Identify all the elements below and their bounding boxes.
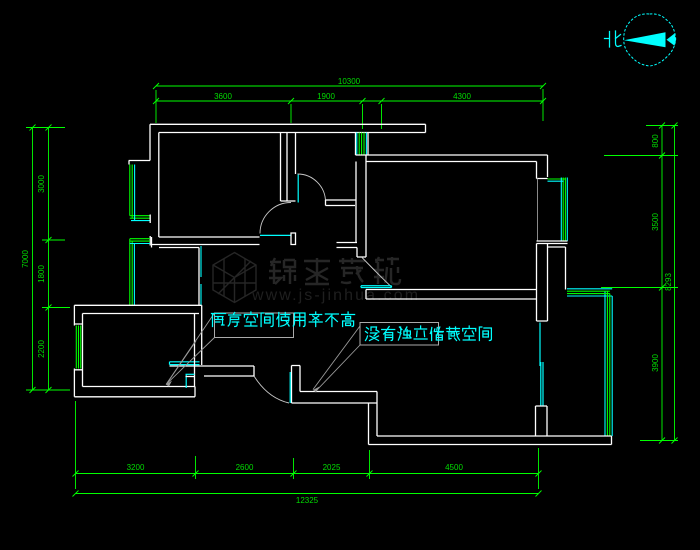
svg-text:10300: 10300 — [338, 77, 361, 86]
svg-text:3900: 3900 — [651, 354, 660, 372]
svg-text:4300: 4300 — [453, 92, 471, 101]
svg-text:2200: 2200 — [37, 340, 46, 358]
svg-text:3500: 3500 — [651, 213, 660, 231]
svg-text:1900: 1900 — [317, 92, 335, 101]
svg-text:2025: 2025 — [323, 463, 341, 472]
svg-text:3600: 3600 — [214, 92, 232, 101]
svg-text:1800: 1800 — [37, 265, 46, 283]
svg-text:3200: 3200 — [127, 463, 145, 472]
svg-text:8293: 8293 — [664, 273, 673, 291]
svg-text:3000: 3000 — [37, 175, 46, 193]
svg-text:7000: 7000 — [21, 250, 30, 268]
svg-text:800: 800 — [651, 134, 660, 148]
svg-text:2600: 2600 — [236, 463, 254, 472]
svg-text:4500: 4500 — [445, 463, 463, 472]
svg-text:12325: 12325 — [296, 496, 319, 505]
